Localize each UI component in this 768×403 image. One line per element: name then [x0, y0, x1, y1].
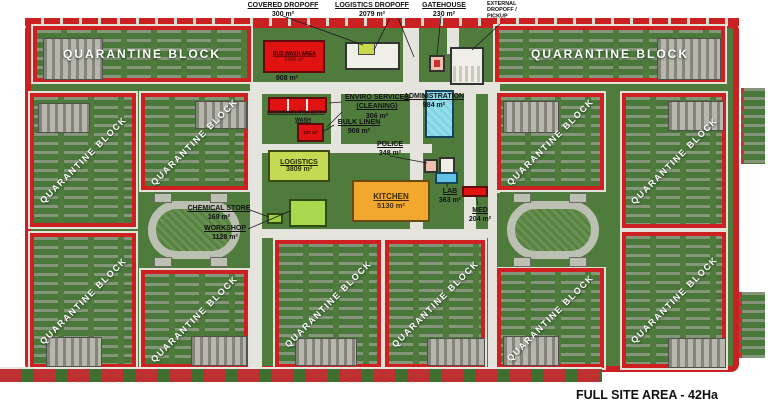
bus-bay — [513, 257, 531, 267]
police-building — [424, 159, 438, 173]
covered-dropoff-label: COVERED DROPOFF 300 m² — [236, 1, 330, 20]
barracks-cluster — [668, 101, 724, 131]
barracks-cluster — [657, 38, 721, 80]
edge-block-strip — [741, 88, 765, 164]
quarantine-block-top-left: QUARANTINE BLOCK — [33, 26, 251, 82]
bus-bay — [569, 257, 587, 267]
wash-building: 227 m² — [297, 123, 324, 142]
quarantine-block-east-4: QUARANTINE BLOCK — [622, 232, 726, 368]
bus-wash-yard-area-label: 908 m² — [262, 74, 312, 83]
barracks-cluster — [668, 338, 726, 368]
quarantine-block-label: QUARANTINE BLOCK — [629, 255, 720, 346]
bus-bay — [154, 193, 172, 203]
barracks-cluster — [503, 101, 559, 133]
kitchen-building: KITCHEN 5130 m² — [352, 180, 430, 222]
lab-building — [435, 172, 458, 184]
med-label: MED 204 m² — [464, 206, 496, 225]
quarantine-block-east-3: QUARANTINE BLOCK — [497, 268, 604, 368]
wash-label: WASH — [292, 117, 315, 124]
gatehouse-marker — [434, 60, 440, 67]
quarantine-block-label: QUARANTINE BLOCK — [390, 259, 481, 350]
building-area: 3480 m² — [284, 57, 304, 62]
chemical-store-label: CHEMICAL STORE 168 m² — [186, 204, 252, 223]
bus-bay — [210, 193, 228, 203]
site-plan: QUARANTINE BLOCK QUARANTINE BLOCK QUARAN… — [0, 0, 768, 403]
barracks-cluster — [46, 337, 102, 367]
logistics-building: LOGISTICS 3809 m² — [268, 150, 330, 182]
road — [403, 28, 419, 86]
bulk-linen-label: BULK LINEN 908 m² — [330, 118, 388, 137]
decontamination-entry-label: DECONTAMINATION ENTRY — [264, 110, 328, 116]
bus-bay — [569, 193, 587, 203]
quarantine-block-label: QUARANTINE BLOCK — [283, 259, 374, 350]
building-area: 227 m² — [303, 130, 317, 135]
barracks-cluster — [427, 338, 485, 366]
bus-bay — [210, 257, 228, 267]
quarantine-block-top-right: QUARANTINE BLOCK — [495, 26, 725, 82]
barracks-cluster — [191, 336, 247, 366]
bus-wash-building: BUS WASH AREA 3480 m² — [263, 40, 325, 73]
edge-block-strip — [739, 292, 765, 358]
site-boundary-bottom-dashes — [0, 367, 602, 382]
quarantine-block-west-1: QUARANTINE BLOCK — [30, 93, 136, 227]
quarantine-block-east-1: QUARANTINE BLOCK — [497, 93, 604, 190]
administration-label: ADMINISTRATION 984 m² — [401, 92, 467, 111]
quarantine-block-south-1: QUARANTINE BLOCK — [275, 240, 381, 368]
chemical-store-building — [267, 213, 283, 224]
bus-bay — [513, 193, 531, 203]
road — [262, 229, 488, 238]
full-site-area-caption: FULL SITE AREA - 42Ha — [576, 388, 718, 402]
covered-dropoff-building — [358, 43, 375, 55]
lab-label: LAB 363 m² — [434, 187, 466, 206]
loop-road-east — [497, 193, 609, 267]
quarantine-block-west-3: QUARANTINE BLOCK — [30, 233, 136, 368]
quarantine-block-west-4: QUARANTINE BLOCK — [141, 270, 248, 368]
bus-bay — [154, 257, 172, 267]
building-label: KITCHEN — [373, 192, 409, 201]
loop-road-ring — [507, 201, 599, 259]
barracks-cluster — [38, 103, 90, 133]
barracks-cluster — [503, 336, 559, 366]
building-label: LOGISTICS — [280, 159, 318, 166]
barracks-cluster — [195, 101, 247, 129]
quarantine-block-south-2: QUARANTINE BLOCK — [385, 240, 485, 368]
building-label: BUS WASH AREA — [272, 51, 315, 56]
logistics-dropoff-label: LOGISTICS DROPOFF 2079 m² — [322, 1, 422, 20]
building-area: 5130 m² — [377, 201, 405, 210]
external-dropoff-label: EXTERNAL DROPOFF / PICKUP — [487, 1, 535, 20]
building-area: 3809 m² — [286, 166, 312, 173]
barracks-cluster — [295, 338, 357, 366]
workshop-label: WORKSHOP 1128 m² — [196, 224, 254, 243]
external-dropoff-colonnade — [453, 66, 481, 82]
barracks-cluster — [43, 38, 103, 80]
quarantine-block-east-2: QUARANTINE BLOCK — [622, 93, 726, 228]
workshop-building — [289, 199, 327, 227]
quarantine-block-west-2: QUARANTINE BLOCK — [141, 93, 248, 190]
gatehouse-label: GATEHOUSE 230 m² — [412, 1, 476, 20]
quarantine-block-label: QUARANTINE BLOCK — [38, 255, 129, 346]
police-label: POLICE 348 m² — [368, 140, 412, 159]
